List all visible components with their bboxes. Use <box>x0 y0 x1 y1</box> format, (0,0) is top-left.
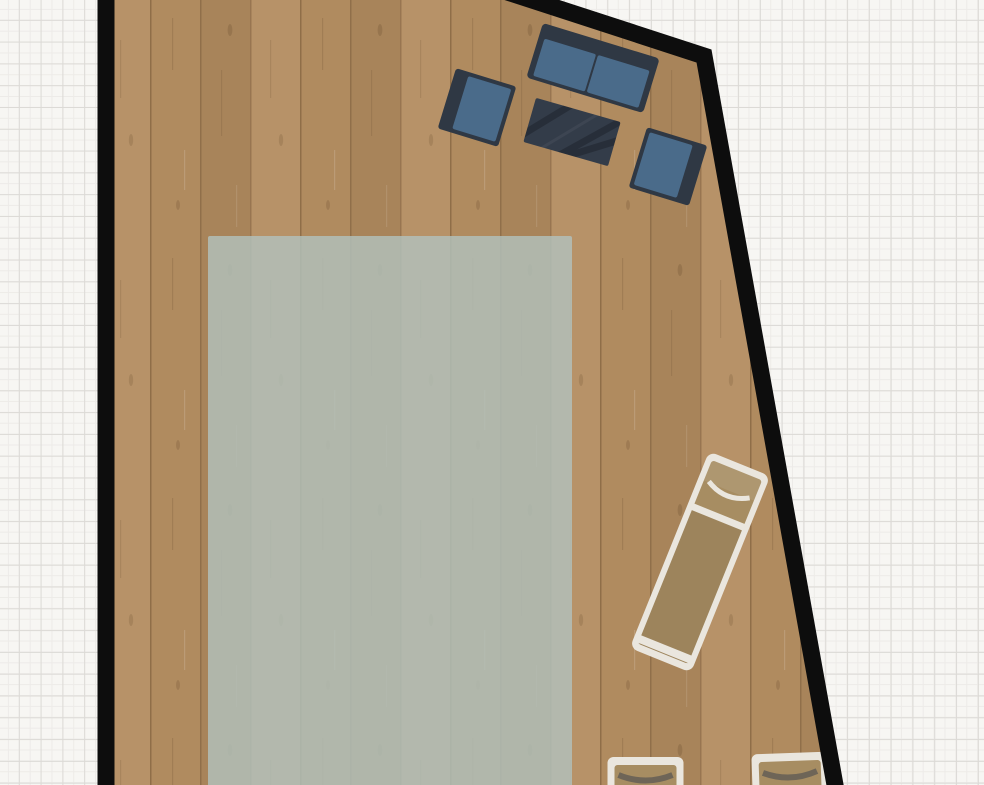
rug[interactable] <box>208 236 572 785</box>
chair-bottom-right[interactable] <box>751 752 829 785</box>
chair-bottom-left[interactable] <box>608 757 684 785</box>
floorplan-canvas <box>0 0 984 785</box>
floorplan-drawing <box>0 0 984 785</box>
